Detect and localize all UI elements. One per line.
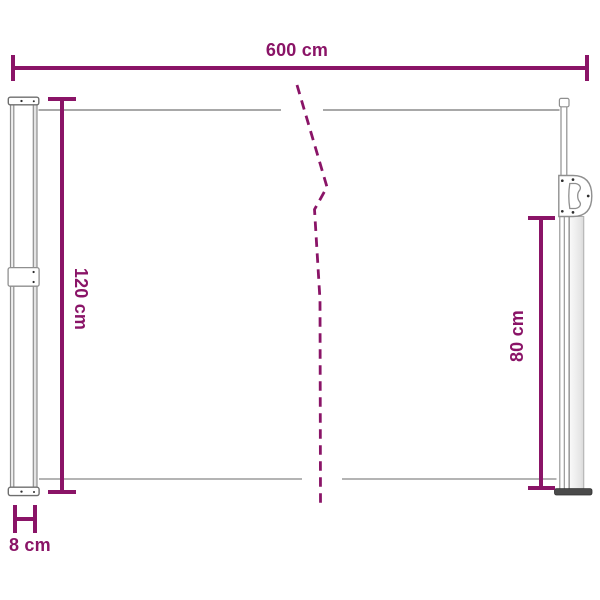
screw-dot <box>20 100 22 102</box>
dim-line <box>12 66 588 70</box>
screw-dot <box>33 491 35 493</box>
screw-dot <box>33 100 35 102</box>
width-label: 600 cm <box>266 41 328 59</box>
pull-pole-lower-lines <box>560 217 569 489</box>
dim-line <box>539 216 543 490</box>
screw-dot <box>561 210 564 213</box>
screw-dot <box>587 195 590 198</box>
screw-dot <box>572 178 575 181</box>
cassette-body-lines <box>11 105 38 488</box>
height-right-label: 80 cm <box>508 310 526 362</box>
pull-handle <box>559 176 592 217</box>
screw-dot <box>20 490 22 492</box>
depth-label: 8 cm <box>9 536 51 554</box>
dim-line <box>60 97 64 494</box>
cassette-connector-band <box>8 268 39 287</box>
pull-pole-casing <box>570 217 584 489</box>
pull-pole-top-cap <box>559 98 569 106</box>
awning-fabric-edges <box>39 110 560 479</box>
screw-dot <box>33 271 35 273</box>
length-break-mark <box>297 85 327 503</box>
pull-pole-upper-lines <box>561 107 567 176</box>
right-pull-pole <box>555 98 593 495</box>
height-left-label: 120 cm <box>72 268 90 330</box>
screw-dot <box>33 281 35 283</box>
diagram-canvas: 600 cm 120 cm 80 cm 8 cm <box>0 0 600 600</box>
left-cassette-pole <box>8 97 39 495</box>
dim-line <box>13 517 37 521</box>
screw-dot <box>561 179 564 182</box>
screw-dot <box>572 211 575 214</box>
floor-foot <box>555 489 593 495</box>
